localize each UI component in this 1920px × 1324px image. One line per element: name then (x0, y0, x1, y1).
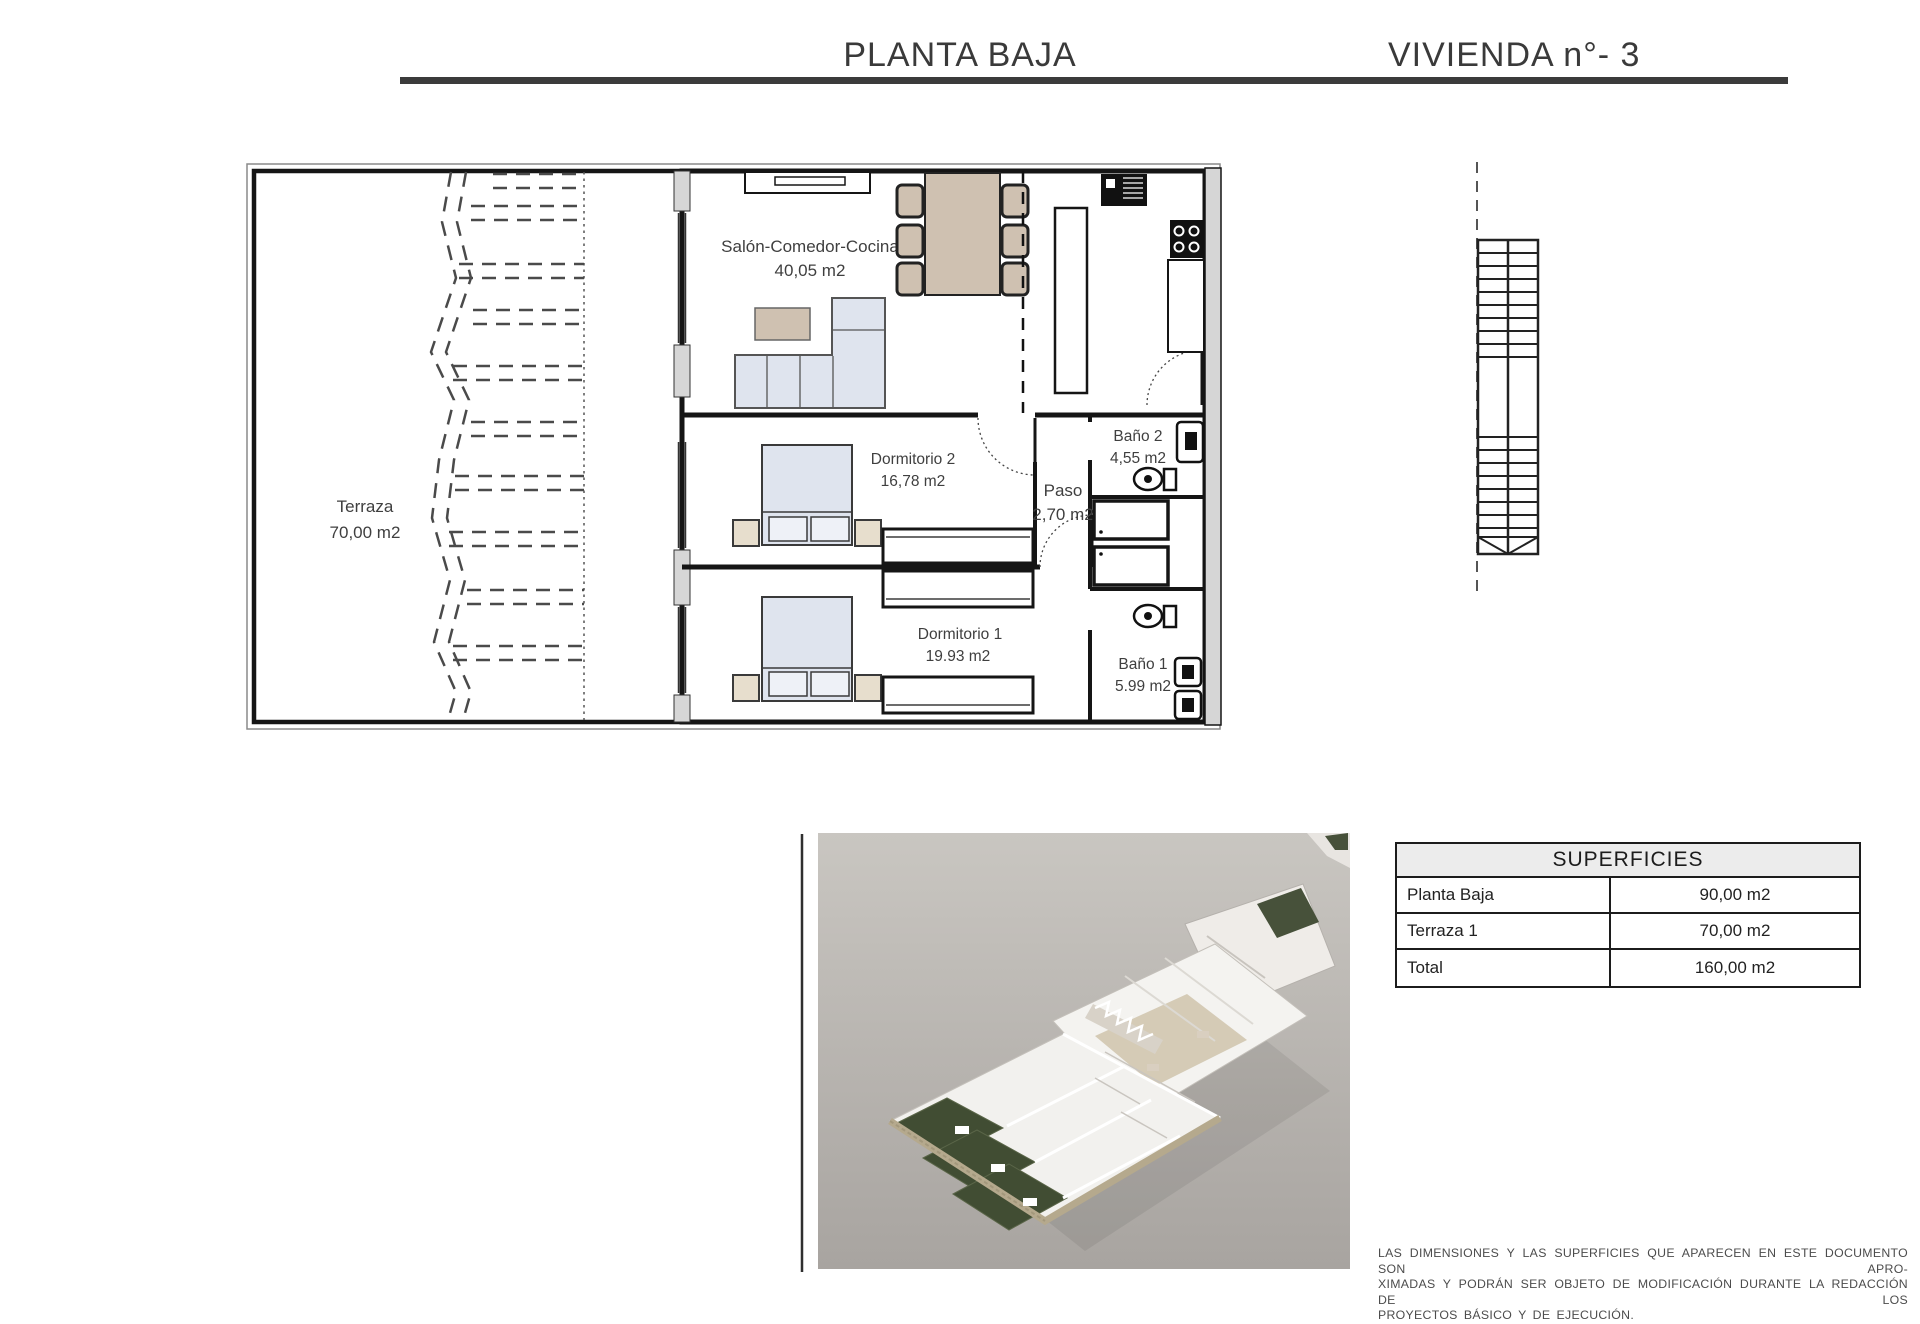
kitchen-peninsula (1055, 208, 1087, 393)
terraza-area: 70,00 m2 (330, 523, 401, 542)
page: { "header": { "title_left": "PLANTA BAJA… (0, 0, 1920, 1280)
page-title-vivienda: VIVIENDA n°- 3 (1388, 36, 1640, 75)
table-row: Terraza 1 70,00 m2 (1397, 912, 1859, 948)
disclaimer-line: XIMADAS Y PODRÁN SER OBJETO DE MODIFICAC… (1378, 1277, 1908, 1308)
floor-plan: Terraza 70,00 m2 Salón-Comedor-C (245, 160, 1235, 735)
bed-2-pillow (769, 517, 807, 541)
dormitorio2-label: Dormitorio 2 (871, 451, 955, 468)
terrace-zigzag-line-1 (431, 172, 456, 720)
render-photo (818, 833, 1350, 1269)
disclaimer-line: LAS DIMENSIONES Y LAS SUPERFICIES QUE AP… (1378, 1246, 1908, 1277)
shower-box (1094, 501, 1168, 539)
row-value: 70,00 m2 (1609, 914, 1859, 948)
render-3d (795, 826, 1365, 1278)
bano1-area: 5.99 m2 (1115, 678, 1171, 695)
bano1-label: Baño 1 (1118, 656, 1167, 673)
row-value: 90,00 m2 (1609, 878, 1859, 912)
right-wall-band (1205, 168, 1221, 725)
dining-chair (897, 263, 923, 295)
table-row: Total 160,00 m2 (1397, 948, 1859, 986)
nightstand (855, 675, 881, 701)
disclaimer-line: PROYECTOS BÁSICO Y DE EJECUCIÓN. (1378, 1308, 1908, 1324)
sink-icon (1101, 174, 1147, 206)
row-value: 160,00 m2 (1609, 950, 1859, 986)
row-label: Planta Baja (1397, 878, 1609, 912)
shower-box (1094, 547, 1168, 585)
toilet-icon (1134, 605, 1176, 627)
stairs-diagram (1460, 160, 1570, 600)
terraza-label: Terraza (337, 497, 394, 516)
terrace-dashed-treads (449, 174, 584, 660)
kitchen-counter (1168, 260, 1204, 352)
superficies-table-title: SUPERFICIES (1397, 844, 1859, 878)
disclaimer-text: LAS DIMENSIONES Y LAS SUPERFICIES QUE AP… (1378, 1246, 1908, 1324)
wardrobe-dorm2 (883, 529, 1033, 563)
nightstand (733, 675, 759, 701)
paso-label: Paso (1044, 481, 1083, 500)
bed-1-pillow (769, 672, 807, 696)
row-label: Total (1397, 950, 1609, 986)
wardrobe-dorm1-bottom (883, 677, 1033, 713)
salon-area: 40,05 m2 (775, 261, 846, 280)
sink-basin (1106, 179, 1115, 188)
tv-screen (775, 177, 845, 185)
nightstand (733, 520, 759, 546)
salon-label: Salón-Comedor-Cocina (721, 237, 899, 256)
stove-icon (1170, 220, 1204, 258)
wardrobe-dorm1-top (883, 571, 1033, 607)
dining-table (925, 173, 1000, 295)
dormitorio2-area: 16,78 m2 (881, 473, 946, 490)
dormitorio1-area: 19.93 m2 (926, 648, 991, 665)
dining-chair (897, 185, 923, 217)
dining-chair (897, 225, 923, 257)
row-label: Terraza 1 (1397, 914, 1609, 948)
header-underline (400, 77, 1788, 84)
terrace-wall (254, 171, 682, 722)
nightstand (855, 520, 881, 546)
superficies-table: SUPERFICIES Planta Baja 90,00 m2 Terraza… (1395, 842, 1861, 988)
table-row: Planta Baja 90,00 m2 (1397, 878, 1859, 912)
washbasin-icon (1177, 422, 1203, 462)
coffee-table (755, 308, 810, 340)
bano2-label: Baño 2 (1113, 428, 1162, 445)
dormitorio1-label: Dormitorio 1 (918, 626, 1002, 643)
bed-1-pillow (811, 672, 849, 696)
terraza-room: Terraza 70,00 m2 (254, 171, 682, 722)
toilet-icon (1134, 468, 1176, 490)
paso-area: 2,70 m2 (1032, 505, 1093, 524)
bed-2-pillow (811, 517, 849, 541)
page-title-planta-baja: PLANTA BAJA (740, 36, 1180, 75)
bano2-area: 4,55 m2 (1110, 450, 1166, 467)
